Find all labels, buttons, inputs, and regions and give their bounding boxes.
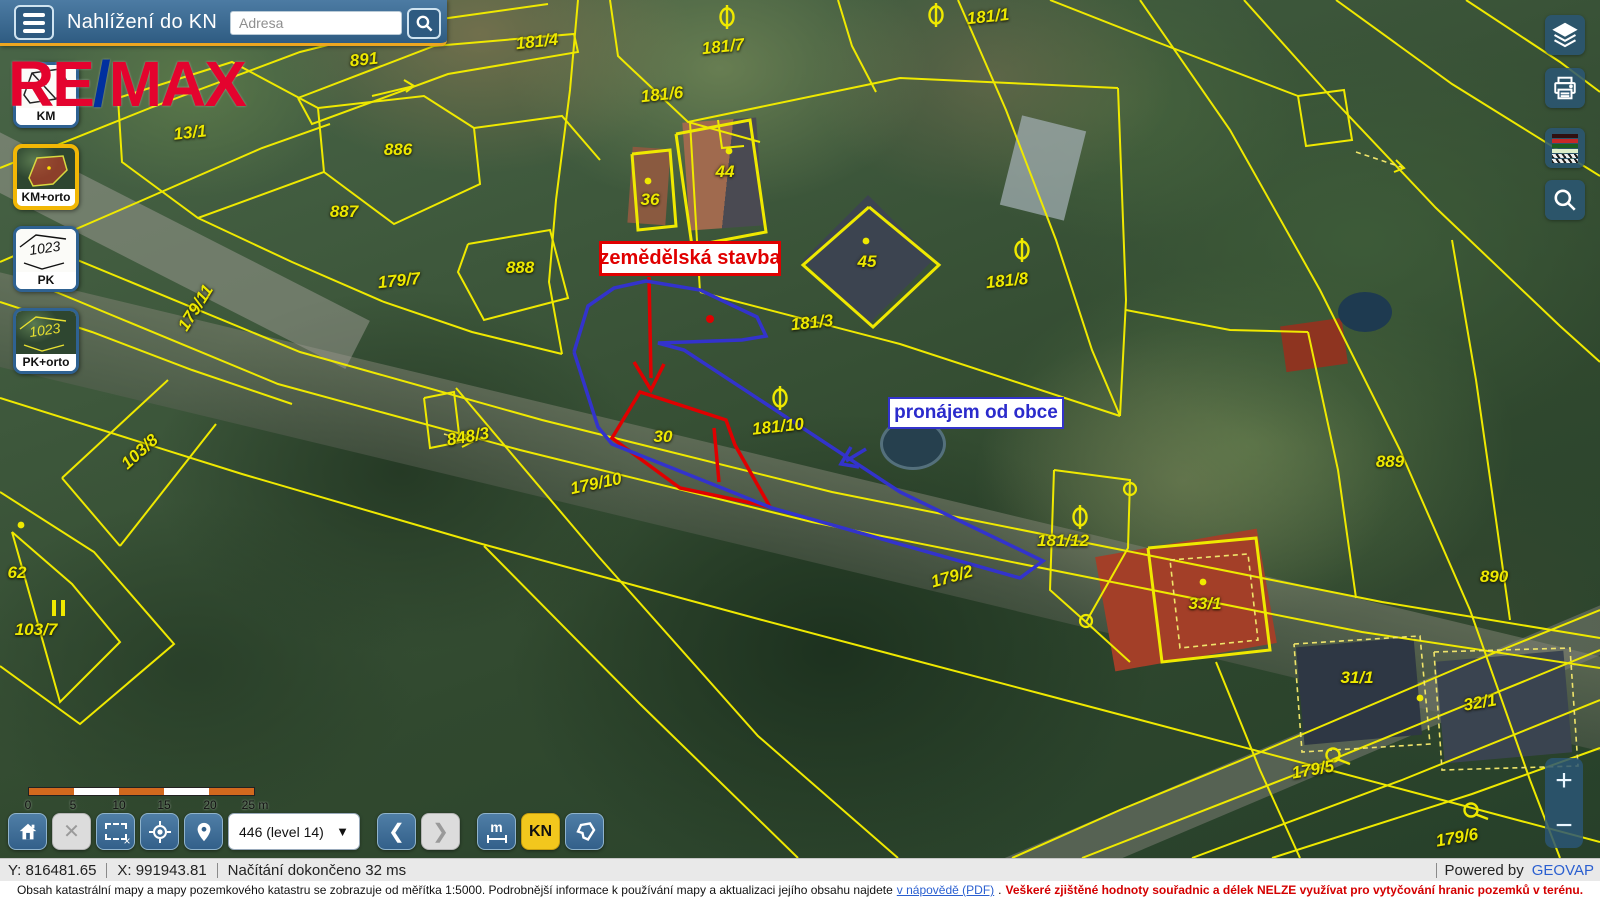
- parcel-number-label: 887: [330, 202, 358, 222]
- status-bar: Y: 816481.65 X: 991943.81 Načítání dokon…: [0, 858, 1600, 881]
- red-annotation: [612, 277, 770, 507]
- parcel-number-label: 181/4: [515, 30, 559, 54]
- separator: [1436, 863, 1437, 878]
- zoom-in-button[interactable]: +: [1545, 758, 1583, 803]
- blue-annotation: [574, 281, 1043, 578]
- scale-tick-label: 0: [25, 798, 32, 812]
- locate-button[interactable]: [140, 813, 179, 850]
- parcel-number-label: 848/3: [445, 423, 490, 450]
- home-icon: [17, 821, 39, 843]
- parcel-number-label: 181/12: [1037, 531, 1089, 551]
- layer-button-km[interactable]: KM: [13, 62, 79, 128]
- point-symbol: [1465, 804, 1489, 820]
- parcel-number-label: 179/11: [174, 281, 218, 335]
- pk-thumbnail: 1023: [16, 229, 76, 272]
- map-symbols: [18, 3, 1488, 819]
- boundary-theta-symbol: [1074, 505, 1087, 529]
- crosshair-icon: [148, 820, 172, 844]
- bottom-toolbar: ✕ 446 (level 14) ▼: [8, 813, 604, 850]
- cadastral-overlay: [0, 0, 1600, 858]
- parcel-number-label: 36: [641, 190, 660, 210]
- chevron-right-icon: ❯: [432, 822, 449, 842]
- parcel-number-label: 181/1: [966, 5, 1010, 29]
- place-marker-button[interactable]: [184, 813, 223, 850]
- zoom-level-value: 446 (level 14): [239, 824, 324, 840]
- parcel-number-label: 32/1: [1462, 690, 1498, 715]
- parcel-number-label: 886: [384, 140, 412, 160]
- app-title: Nahlížení do KN: [67, 11, 217, 34]
- powered-by: Powered by GEOVAP: [1436, 862, 1600, 879]
- address-search-input[interactable]: [230, 11, 402, 35]
- building-roof: [1095, 529, 1277, 672]
- parcel-number-label: 45: [858, 252, 877, 272]
- scale-bar-segments: [28, 787, 255, 796]
- app-window: 891181/4181/7181/6181/113/1886887888179/…: [0, 0, 1600, 900]
- draw-area-button[interactable]: [565, 813, 604, 850]
- coordinates-readout: Y: 816481.65 X: 991943.81 Načítání dokon…: [0, 862, 406, 879]
- orto-sketch-icon: [17, 148, 75, 189]
- scale-tick-label: 20: [203, 798, 216, 812]
- parcel-number-label: 181/10: [751, 414, 805, 439]
- layer-label: PK: [16, 272, 76, 289]
- pk-sketch-icon: 1023: [16, 229, 76, 272]
- annotation-label-agricultural-building: zemědělská stavba: [599, 241, 781, 276]
- parcel-number-label: 103/8: [117, 430, 162, 473]
- map-search-button[interactable]: [1545, 180, 1585, 220]
- layer-button-pk[interactable]: 1023 PK: [13, 226, 79, 292]
- chevron-left-icon: ❮: [388, 822, 405, 842]
- plus-icon: +: [1555, 766, 1573, 796]
- menu-button[interactable]: [14, 5, 54, 40]
- help-pdf-link[interactable]: v nápovědě (PDF): [897, 883, 994, 897]
- building-roof: [1436, 651, 1572, 764]
- building-roof: [627, 147, 670, 225]
- loading-status: Načítání dokončeno 32 ms: [228, 862, 406, 879]
- parcel-number-label: 62: [8, 563, 27, 583]
- lasso-polygon-icon: [573, 820, 597, 844]
- measure-button[interactable]: m: [477, 813, 516, 850]
- svg-text:1023: 1023: [28, 320, 61, 340]
- vertex-circle-symbol: [1080, 615, 1092, 627]
- parcel-number-label: 889: [1376, 452, 1404, 472]
- close-icon: ✕: [63, 819, 80, 844]
- layer-button-km-orto[interactable]: KM+orto: [13, 144, 79, 210]
- kn-label: KN: [529, 823, 552, 841]
- layer-button-pk-orto[interactable]: 1023 PK+orto: [13, 308, 79, 374]
- building-dot-symbol: [18, 522, 25, 529]
- boundary-theta-symbol: [721, 5, 734, 29]
- building-roof: [682, 118, 763, 231]
- km-thumbnail: [16, 65, 76, 108]
- parcel-number-label: 181/8: [985, 269, 1029, 293]
- parcel-number-label: 103/7: [15, 620, 58, 640]
- app-header: Nahlížení do KN: [0, 0, 447, 46]
- powered-by-text: Powered by: [1445, 862, 1524, 879]
- scale-tick-label: 25 m: [242, 798, 269, 812]
- parcel-labels-layer: 891181/4181/7181/6181/113/1886887888179/…: [0, 0, 1600, 858]
- legend-button[interactable]: [1545, 128, 1585, 168]
- geovap-link[interactable]: GEOVAP: [1532, 862, 1594, 879]
- building-roof: [1296, 637, 1422, 745]
- parcel-number-label: 13/1: [172, 121, 207, 144]
- cancel-selection-button: ✕: [52, 813, 91, 850]
- cadastral-sketch-icon: [16, 65, 76, 108]
- minus-icon: −: [1555, 811, 1573, 841]
- address-search-button[interactable]: [407, 8, 441, 39]
- parcel-number-label: 33/1: [1188, 594, 1221, 614]
- building-dot-symbol: [863, 238, 870, 245]
- zoom-out-button[interactable]: −: [1545, 803, 1583, 848]
- print-icon: [1552, 75, 1578, 101]
- disclaimer-text: Obsah katastrální mapy a mapy pozemkovéh…: [17, 883, 893, 897]
- parcel-number-label: 179/5: [1290, 756, 1335, 783]
- separator: [106, 863, 107, 878]
- parcel-number-label: 179/7: [377, 269, 421, 293]
- search-icon: [1552, 187, 1578, 213]
- scale-tick-label: 10: [112, 798, 125, 812]
- street-bottom-right: [991, 583, 1600, 858]
- layers-panel-button[interactable]: [1545, 15, 1585, 55]
- building-dot-symbol: [1200, 579, 1207, 586]
- layer-label: KM: [16, 108, 76, 125]
- parcel-number-label: 179/10: [568, 469, 623, 499]
- history-forward-button: ❯: [421, 813, 460, 850]
- parcel-number-label: 890: [1480, 567, 1508, 587]
- scale-tick-label: 15: [157, 798, 170, 812]
- home-button[interactable]: [8, 813, 47, 850]
- parcel-number-label: 31/1: [1340, 668, 1373, 688]
- disclaimer-warning: Veškeré zjištěné hodnoty souřadnic a dél…: [1006, 883, 1584, 897]
- legend-icon: [1552, 134, 1578, 163]
- greenhouse: [1000, 115, 1086, 220]
- coordinate-x: X: 991943.81: [117, 862, 206, 879]
- pk-orto-thumbnail: 1023: [16, 311, 76, 354]
- km-orto-thumbnail: [17, 148, 75, 189]
- annotation-text: pronájem od obce: [894, 402, 1058, 424]
- annotation-text: zemědělská stavba: [599, 247, 780, 270]
- map-pin-icon: [193, 821, 215, 843]
- building-roof: [803, 195, 933, 325]
- boundary-theta-symbol: [774, 386, 787, 410]
- scale-tick-label: 5: [70, 798, 77, 812]
- parcel-boundaries: [0, 0, 1600, 858]
- dropdown-arrow-icon: ▼: [336, 825, 349, 838]
- parcel-number-label: 44: [716, 162, 735, 182]
- parcel-number-label: 179/2: [929, 562, 975, 593]
- point-symbol: [1327, 749, 1351, 765]
- zoom-control: + −: [1545, 758, 1583, 848]
- kn-info-button[interactable]: KN: [521, 813, 560, 850]
- building-dot-symbol: [726, 148, 733, 155]
- main-road: [0, 258, 1600, 758]
- pk-orto-sketch-icon: 1023: [16, 311, 76, 354]
- layers-icon: [1551, 21, 1579, 49]
- parcel-number-label: 181/6: [640, 83, 684, 107]
- building-dot-symbol: [1417, 695, 1424, 702]
- search-icon: [415, 14, 434, 33]
- rectangle-select-button[interactable]: [96, 813, 135, 850]
- map-canvas[interactable]: 891181/4181/7181/6181/113/1886887888179/…: [0, 0, 1600, 858]
- disclaimer-bar: Obsah katastrální mapy a mapy pozemkovéh…: [0, 881, 1600, 900]
- parcel-number-label: 181/7: [701, 35, 745, 59]
- print-button[interactable]: [1545, 68, 1585, 108]
- separator: [217, 863, 218, 878]
- coordinate-y: Y: 816481.65: [8, 862, 96, 879]
- boundary-theta-symbol: [1016, 238, 1029, 262]
- parcel-number-label: 181/3: [790, 311, 834, 335]
- building-dot-symbol: [645, 178, 652, 185]
- pool: [1338, 292, 1392, 332]
- annotation-label-municipal-lease: pronájem od obce: [888, 397, 1064, 429]
- scale-bar: 0510152025 m: [28, 787, 255, 811]
- measure-label: m: [490, 820, 502, 834]
- layer-label: KM+orto: [17, 189, 75, 206]
- parcel-number-label: 30: [654, 427, 673, 447]
- layer-label: PK+orto: [16, 354, 76, 371]
- parcel-number-label: 891: [349, 49, 379, 72]
- svg-text:1023: 1023: [28, 238, 61, 258]
- parcel-number-label: 179/6: [1434, 824, 1479, 851]
- vertex-circle-symbol: [1124, 483, 1136, 495]
- disclaimer-period: .: [998, 883, 1001, 897]
- history-back-button[interactable]: ❮: [377, 813, 416, 850]
- zoom-level-select[interactable]: 446 (level 14) ▼: [228, 813, 360, 850]
- ruler-icon: [487, 835, 507, 843]
- boundary-theta-symbol: [930, 3, 943, 27]
- dashed-rectangle-icon: [105, 823, 127, 840]
- parcel-number-label: 888: [506, 258, 534, 278]
- building-roof: [1280, 318, 1348, 372]
- scale-bar-labels: 0510152025 m: [28, 798, 255, 811]
